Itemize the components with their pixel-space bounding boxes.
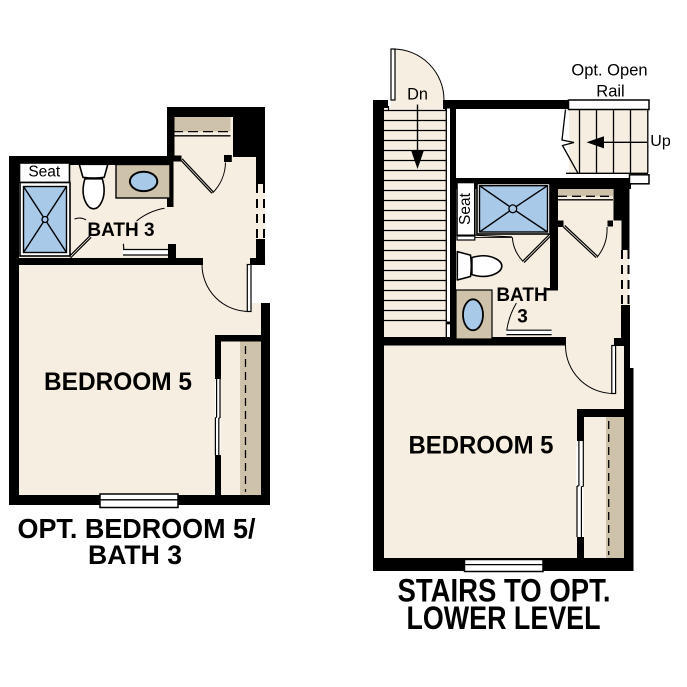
svg-text:BEDROOM 5: BEDROOM 5 <box>409 432 554 460</box>
svg-text:BEDROOM 5: BEDROOM 5 <box>44 368 192 396</box>
svg-text:BATH 3: BATH 3 <box>88 540 182 570</box>
svg-text:BATH: BATH <box>496 285 547 306</box>
svg-text:Dn: Dn <box>407 86 428 104</box>
svg-text:3: 3 <box>517 307 528 328</box>
svg-text:Seat: Seat <box>457 192 474 225</box>
svg-text:Rail: Rail <box>596 83 624 101</box>
svg-text:BATH 3: BATH 3 <box>87 220 154 241</box>
svg-text:Seat: Seat <box>28 164 61 181</box>
svg-text:LOWER LEVEL: LOWER LEVEL <box>407 600 601 636</box>
svg-text:Opt. Open: Opt. Open <box>571 62 647 80</box>
svg-text:Up: Up <box>650 133 671 150</box>
